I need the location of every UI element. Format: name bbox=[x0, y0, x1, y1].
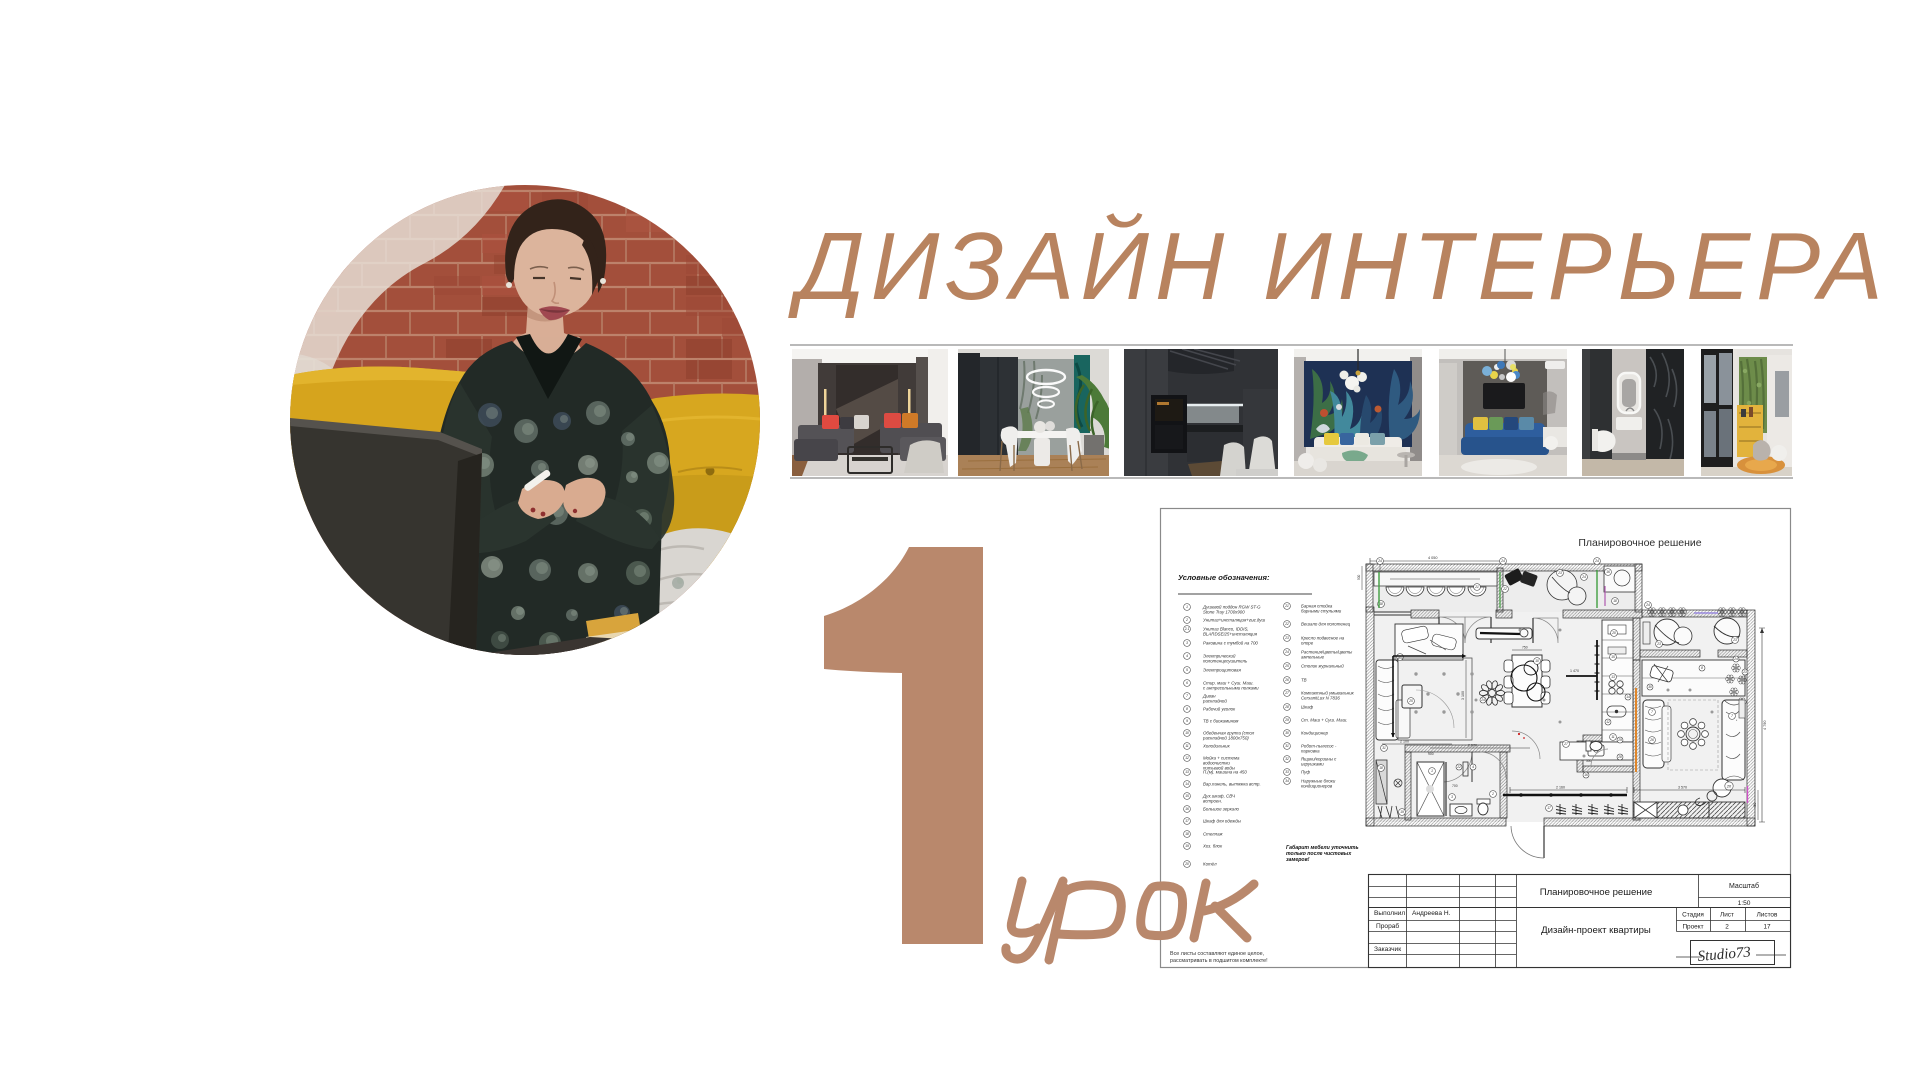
svg-text:300: 300 bbox=[1586, 759, 1592, 763]
svg-text:3 100: 3 100 bbox=[1461, 691, 1465, 700]
svg-text:2 160: 2 160 bbox=[1556, 786, 1565, 790]
svg-text:Шкаф: Шкаф bbox=[1301, 705, 1314, 710]
svg-text:Выполнил: Выполнил bbox=[1374, 910, 1405, 917]
svg-text:Габарит мебели уточнить: Габарит мебели уточнить bbox=[1286, 844, 1359, 851]
svg-text:Заказчик: Заказчик bbox=[1374, 946, 1401, 953]
svg-text:17: 17 bbox=[1547, 806, 1551, 810]
svg-text:24: 24 bbox=[1377, 559, 1382, 563]
svg-text:парковка: парковка bbox=[1301, 749, 1320, 754]
svg-text:2 570: 2 570 bbox=[1468, 744, 1477, 748]
svg-text:23: 23 bbox=[1656, 642, 1661, 646]
svg-text:2: 2 bbox=[1491, 792, 1494, 796]
svg-text:23: 23 bbox=[1557, 571, 1562, 575]
svg-text:20: 20 bbox=[1726, 784, 1732, 788]
svg-text:29: 29 bbox=[1617, 738, 1622, 742]
svg-text:игрушками: игрушками bbox=[1301, 762, 1324, 767]
svg-text:24: 24 bbox=[1500, 559, 1505, 563]
svg-text:барными стульями: барными стульями bbox=[1301, 609, 1342, 614]
svg-text:Кондиционер: Кондиционер bbox=[1301, 731, 1329, 736]
svg-text:Листов: Листов bbox=[1757, 912, 1778, 919]
svg-text:17: 17 bbox=[1763, 924, 1771, 931]
svg-text:26: 26 bbox=[1649, 738, 1654, 742]
svg-text:13: 13 bbox=[1611, 675, 1615, 679]
svg-text:кондиционеров: кондиционеров bbox=[1301, 784, 1333, 789]
svg-text:24: 24 bbox=[1645, 603, 1650, 607]
svg-text:10: 10 bbox=[1535, 659, 1539, 663]
svg-text:25: 25 bbox=[1408, 699, 1413, 703]
svg-text:23: 23 bbox=[1742, 670, 1747, 674]
svg-text:30: 30 bbox=[1648, 685, 1652, 689]
svg-text:700: 700 bbox=[1452, 784, 1458, 788]
svg-text:CersanitLux N 7836: CersanitLux N 7836 bbox=[1301, 696, 1340, 701]
svg-text:1 470: 1 470 bbox=[1570, 669, 1579, 673]
svg-text:12: 12 bbox=[1606, 720, 1610, 724]
svg-text:31: 31 bbox=[1382, 746, 1386, 750]
svg-text:18: 18 bbox=[1379, 766, 1383, 770]
svg-text:900: 900 bbox=[1428, 752, 1434, 756]
svg-text:500: 500 bbox=[1357, 574, 1361, 580]
svg-text:24: 24 bbox=[1594, 559, 1599, 563]
svg-text:Столик журнальный: Столик журнальный bbox=[1301, 664, 1344, 669]
svg-text:24: 24 bbox=[1733, 657, 1738, 661]
svg-text:Стадия: Стадия bbox=[1682, 912, 1704, 919]
svg-text:7: 7 bbox=[1651, 710, 1653, 714]
svg-text:11: 11 bbox=[1611, 735, 1615, 739]
svg-text:Лист: Лист bbox=[1720, 912, 1734, 919]
svg-text:Масштаб: Масштаб bbox=[1729, 882, 1759, 890]
svg-text:22: 22 bbox=[1502, 587, 1507, 591]
svg-text:4: 4 bbox=[1472, 765, 1474, 769]
svg-text:2: 2 bbox=[1725, 924, 1729, 931]
svg-text:24: 24 bbox=[1581, 575, 1586, 579]
svg-text:ТВ: ТВ bbox=[1301, 678, 1307, 683]
svg-text:3: 3 bbox=[1451, 795, 1453, 799]
svg-text:18: 18 bbox=[1613, 599, 1617, 603]
svg-text:4 790: 4 790 bbox=[1763, 720, 1767, 730]
svg-text:7: 7 bbox=[1731, 714, 1733, 718]
svg-text:27: 27 bbox=[1563, 742, 1568, 746]
svg-text:28: 28 bbox=[1617, 755, 1622, 759]
svg-text:Дизайн-проект квартиры: Дизайн-проект квартиры bbox=[1541, 925, 1651, 936]
svg-text:20: 20 bbox=[1611, 631, 1616, 635]
svg-text:22: 22 bbox=[1456, 765, 1461, 769]
svg-text:4 050: 4 050 bbox=[1428, 556, 1438, 560]
svg-text:Прораб: Прораб bbox=[1376, 922, 1399, 930]
svg-text:14: 14 bbox=[1626, 695, 1630, 699]
svg-text:3 570: 3 570 bbox=[1678, 786, 1687, 790]
svg-text:Вешало для полотенец: Вешало для полотенец bbox=[1301, 622, 1351, 627]
svg-text:Пуф: Пуф bbox=[1301, 770, 1310, 775]
svg-text:Планировочное решение: Планировочное решение bbox=[1540, 887, 1653, 898]
svg-text:23: 23 bbox=[1732, 638, 1737, 642]
svg-text:16: 16 bbox=[1584, 773, 1588, 777]
svg-text:2 100: 2 100 bbox=[1400, 740, 1409, 744]
svg-text:1: 1 bbox=[1431, 769, 1433, 773]
svg-text:19: 19 bbox=[1400, 810, 1404, 814]
svg-text:750: 750 bbox=[1522, 646, 1528, 650]
svg-text:Андреева Н.: Андреева Н. bbox=[1412, 910, 1451, 917]
svg-text:ампельные: ампельные bbox=[1301, 655, 1325, 660]
svg-text:18: 18 bbox=[1379, 602, 1383, 606]
svg-text:опоре: опоре bbox=[1301, 641, 1314, 646]
svg-text:24: 24 bbox=[1480, 698, 1485, 702]
svg-text:450: 450 bbox=[1753, 802, 1757, 808]
svg-text:Ст. Маш + Суш. Маш.: Ст. Маш + Суш. Маш. bbox=[1301, 718, 1347, 723]
svg-text:Проект: Проект bbox=[1682, 924, 1703, 931]
svg-text:Планировочное решение: Планировочное решение bbox=[1578, 537, 1701, 549]
svg-text:16: 16 bbox=[1606, 570, 1610, 574]
svg-text:8: 8 bbox=[1701, 666, 1703, 670]
svg-text:15: 15 bbox=[1611, 655, 1615, 659]
svg-text:1:50: 1:50 bbox=[1738, 900, 1751, 907]
svg-text:21: 21 bbox=[1474, 585, 1479, 589]
